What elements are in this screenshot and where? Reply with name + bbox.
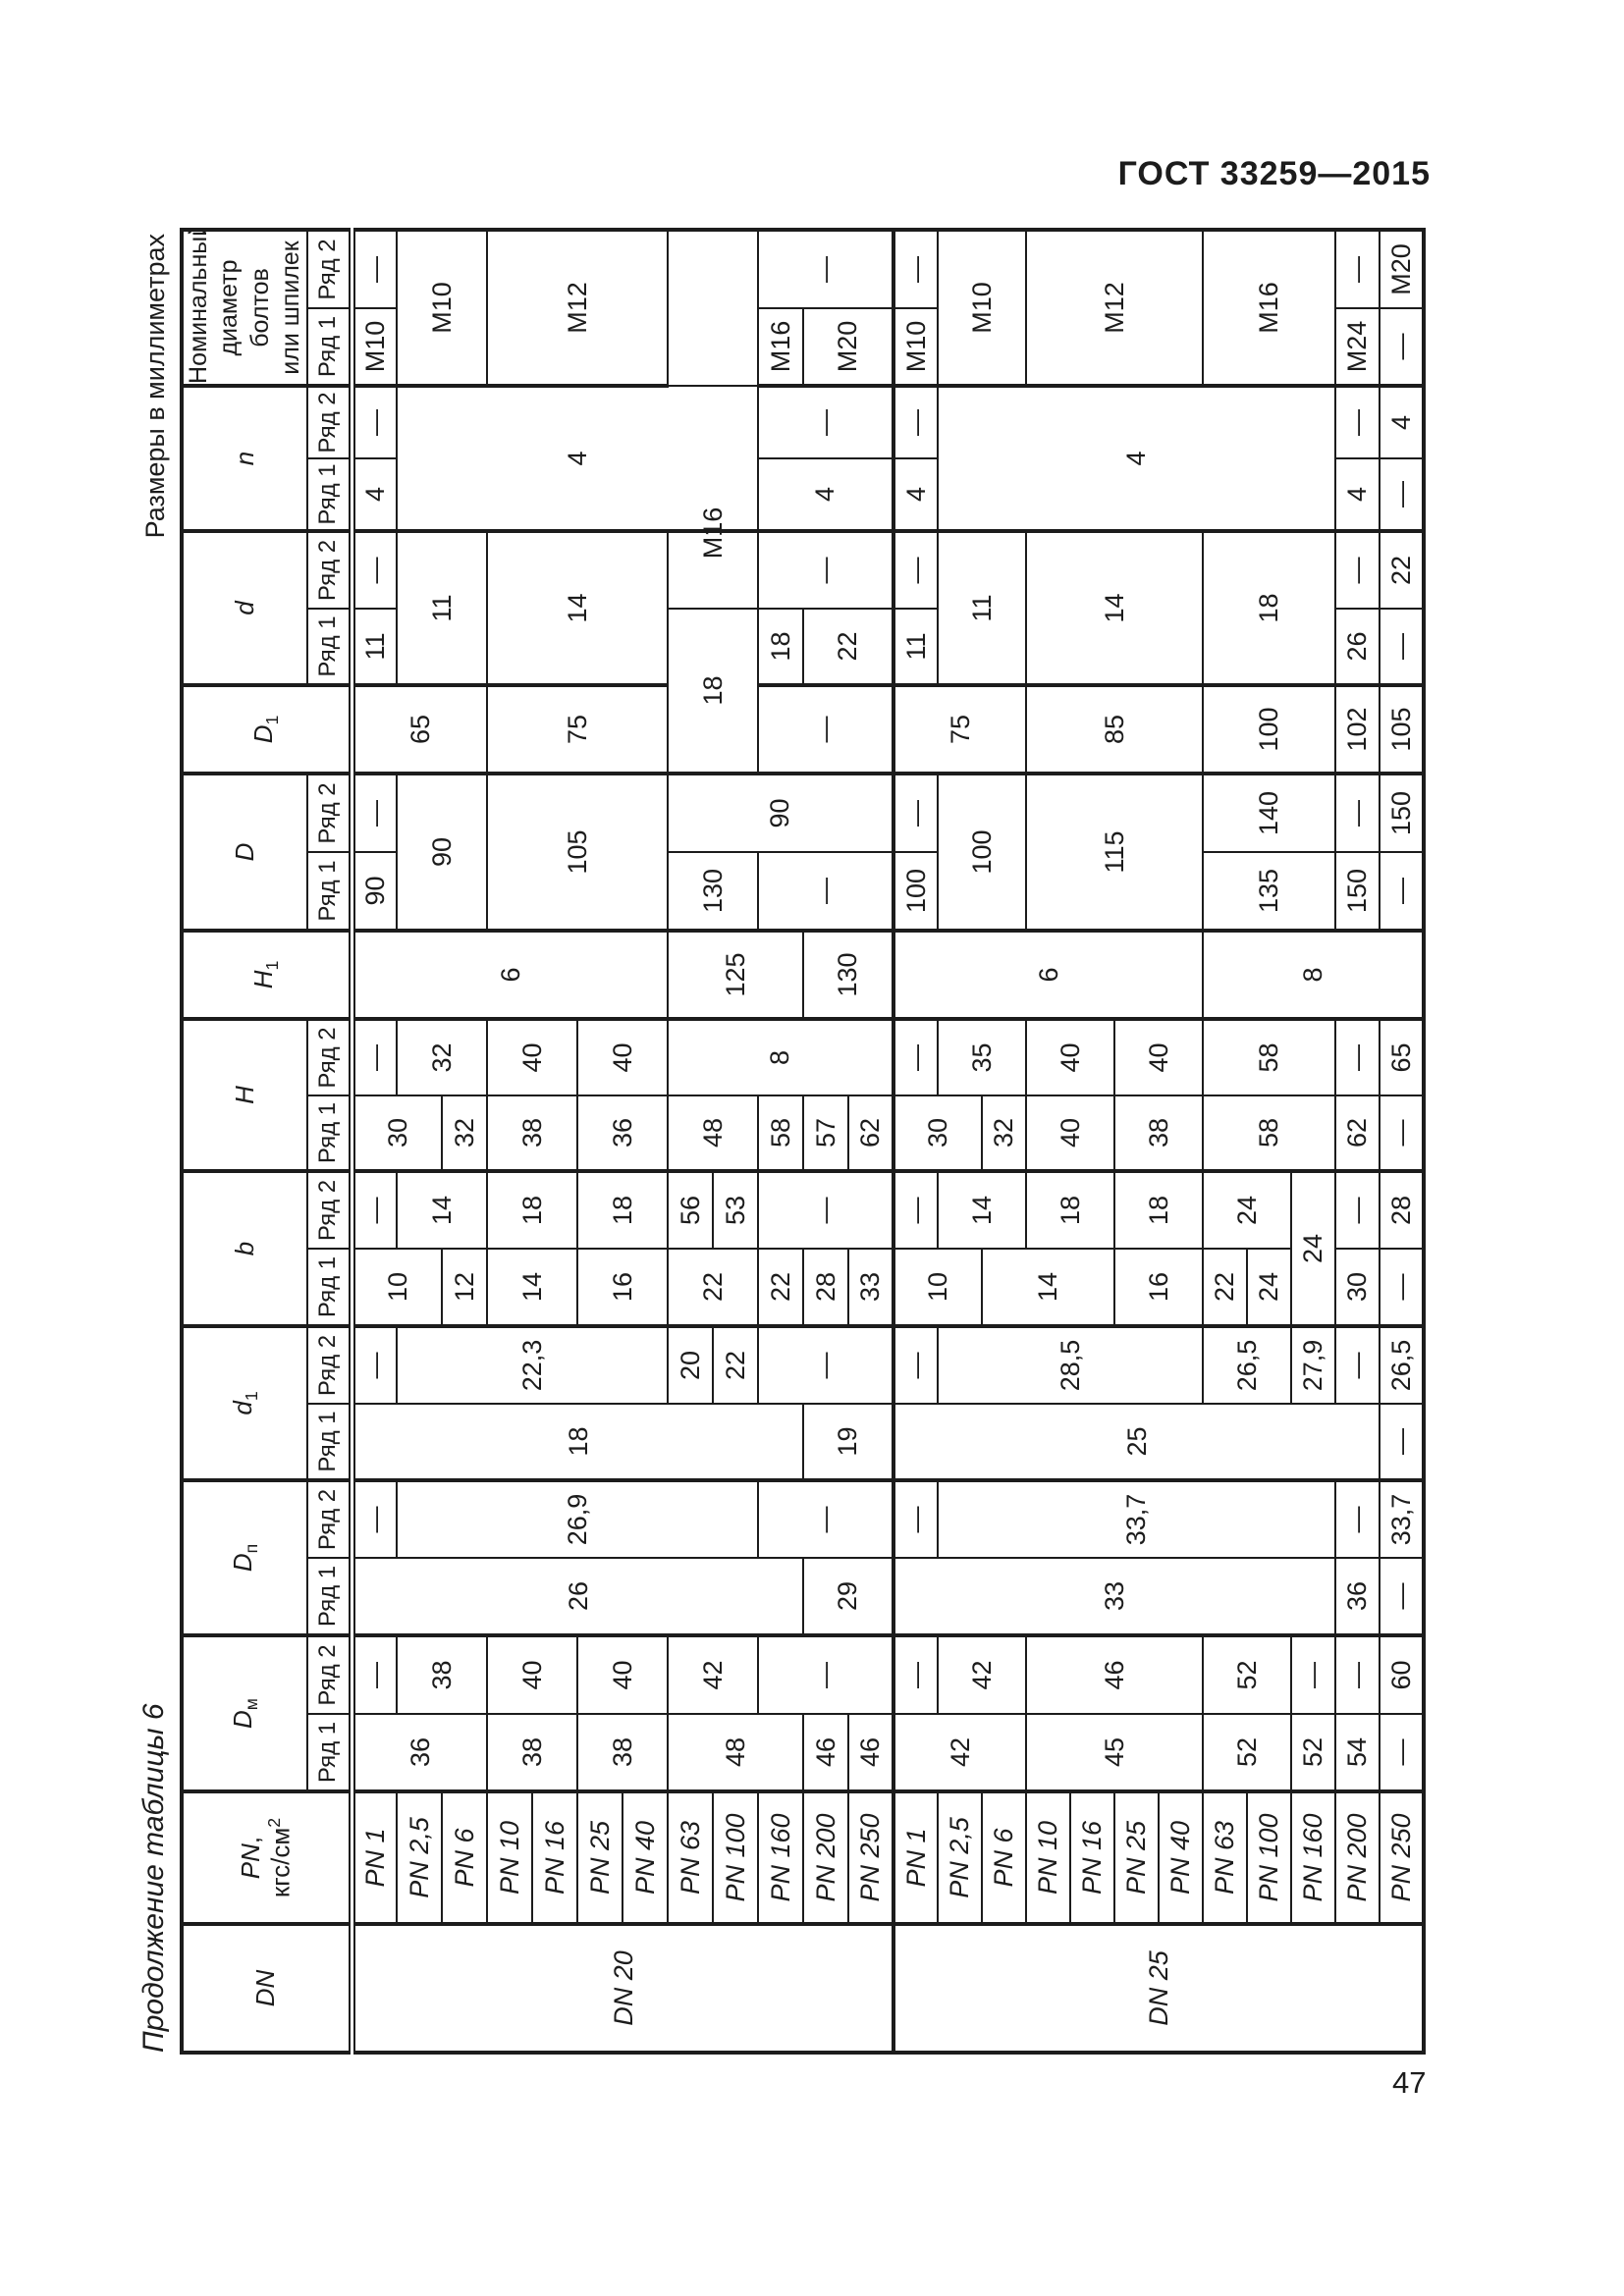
row-header-pn: PN 1: [893, 1791, 938, 1924]
row-header-pn: PN 40: [1159, 1791, 1203, 1924]
table-cell: 46: [803, 1714, 848, 1791]
table-cell: —: [1335, 230, 1380, 308]
column-header: D1: [182, 685, 352, 774]
table-cell: 53: [713, 1171, 758, 1249]
table-cell: —: [352, 531, 397, 609]
table-cell: 12: [442, 1249, 487, 1326]
row-header-pn: PN 100: [1247, 1791, 1291, 1924]
table-cell: 150: [1380, 774, 1424, 852]
table-cell: —: [352, 386, 397, 458]
page-number: 47: [1392, 2065, 1426, 2101]
row-header-pn: PN 25: [1114, 1791, 1159, 1924]
table-cell: 4: [1335, 458, 1380, 531]
table-cell: 40: [487, 1635, 577, 1714]
table-cell: М10: [893, 308, 938, 386]
table-cell: —: [1335, 1326, 1380, 1404]
table-cell: 22: [713, 1326, 758, 1404]
table-cell: 38: [397, 1635, 487, 1714]
table-cell: 14: [487, 1249, 577, 1326]
table-cell: —: [1380, 1714, 1424, 1791]
table-cell: —: [1335, 1171, 1380, 1249]
table-cell: М16: [1203, 230, 1335, 386]
table-cell: 52: [1203, 1635, 1291, 1714]
table-cell: М24: [1335, 308, 1380, 386]
table-cell: 33: [848, 1249, 893, 1326]
table-cell: 11: [397, 531, 487, 685]
table-cell: 24: [1247, 1249, 1291, 1326]
table-cell: —: [1335, 774, 1380, 852]
table-cell: —: [893, 230, 938, 308]
table-continuation-caption: Продолжение таблицы 6: [137, 1703, 171, 2053]
table-cell: —: [1335, 1635, 1380, 1714]
table-cell: —: [1380, 458, 1424, 531]
table-cell: 36: [352, 1714, 487, 1791]
document-header: ГОСТ 33259—2015: [1118, 155, 1431, 193]
table-cell: 75: [487, 685, 668, 774]
units-caption: Размеры в миллиметрах: [140, 234, 171, 538]
column-header: Dм: [182, 1635, 307, 1791]
row-header-pn: PN 1: [352, 1791, 397, 1924]
row-header-pn: PN 2,5: [397, 1791, 442, 1924]
table-cell: 52: [1203, 1714, 1291, 1791]
table-cell: 11: [893, 609, 938, 685]
table-cell: —: [893, 1019, 938, 1095]
table-cell: М16: [758, 308, 803, 386]
table-cell: 4: [758, 458, 893, 531]
row-header-pn: PN 200: [803, 1791, 848, 1924]
row-header-pn: PN 250: [1380, 1791, 1424, 1924]
table-cell: М10: [397, 230, 487, 386]
row-header-pn: PN 6: [442, 1791, 487, 1924]
table-cell: 26,5: [1380, 1326, 1424, 1404]
row-header-pn: PN 16: [1070, 1791, 1114, 1924]
table-cell: М20: [1380, 230, 1424, 308]
table-cell: 10: [893, 1249, 982, 1326]
table-cell: 28,5: [938, 1326, 1203, 1404]
table-cell: 135: [1203, 852, 1335, 931]
table-cell: 150: [1335, 852, 1380, 931]
table-cell: 8: [1203, 931, 1424, 1019]
table-cell: 38: [487, 1714, 577, 1791]
table-cell: 18: [487, 1171, 577, 1249]
table-cell: 4: [352, 458, 397, 531]
table-cell: 36: [1335, 1558, 1380, 1635]
table-cell: 19: [803, 1404, 893, 1480]
table-cell: —: [1335, 386, 1380, 458]
table-cell: 58: [1203, 1095, 1335, 1171]
table-cell: М16: [668, 458, 758, 609]
document-page: { "page": { "header": "ГОСТ 33259—2015",…: [0, 0, 1624, 2296]
table-cell: 40: [1026, 1019, 1114, 1095]
row-header-pn: PN 2,5: [938, 1791, 982, 1924]
table-cell: —: [1335, 1019, 1380, 1095]
table-cell: 4: [1380, 386, 1424, 458]
table-cell: 35: [938, 1019, 1026, 1095]
table-cell: 16: [577, 1249, 668, 1326]
table-cell: 105: [1380, 685, 1424, 774]
flange-dimensions-table: DNPN,кгс/см2DмDпd1bHH1DD1dnНоминальныйди…: [180, 228, 1426, 2055]
table-cell: 40: [1026, 1095, 1114, 1171]
column-header: Dп: [182, 1480, 307, 1635]
table-cell: —: [352, 1019, 397, 1095]
table-cell: 62: [848, 1095, 893, 1171]
rotated-table-block: Продолжение таблицы 6 Размеры в миллимет…: [128, 232, 1432, 2055]
table-cell: —: [758, 1171, 893, 1249]
table-cell: 28: [803, 1249, 848, 1326]
table-cell: 14: [938, 1171, 1026, 1249]
table-cell: 22: [758, 1249, 803, 1326]
table-cell: —: [893, 1326, 938, 1404]
row-header-pn: PN 63: [1203, 1791, 1247, 1924]
table-cell: 4: [938, 386, 1335, 531]
table-cell: 65: [352, 685, 487, 774]
table-cell: 130: [668, 852, 758, 931]
table-cell: М12: [1026, 230, 1203, 386]
column-header: b: [182, 1171, 307, 1326]
table-cell: 40: [1114, 1019, 1203, 1095]
table-cell: 115: [1026, 774, 1203, 931]
table-cell: 90: [397, 774, 487, 931]
column-header: H1: [182, 931, 352, 1019]
table-cell: 24: [1203, 1171, 1291, 1249]
table-cell: 22: [803, 609, 893, 685]
table-cell: —: [1380, 1404, 1424, 1480]
row-series-header: Ряд 1: [307, 1249, 352, 1326]
table-cell: —: [1380, 852, 1424, 931]
row-header-pn: PN 250: [848, 1791, 893, 1924]
table-cell: —: [1291, 1635, 1335, 1714]
column-header: d1: [182, 1326, 307, 1480]
table-cell: 14: [1026, 531, 1203, 685]
table-cell: 18: [352, 1404, 803, 1480]
table-cell: 32: [442, 1095, 487, 1171]
table-cell: 4: [893, 458, 938, 531]
table-cell: 18: [577, 1171, 668, 1249]
table-cell: 75: [893, 685, 1026, 774]
table-cell: 18: [1026, 1171, 1114, 1249]
table-cell: 85: [1026, 685, 1203, 774]
table-cell: 38: [1114, 1095, 1203, 1171]
row-header-pn: PN 40: [623, 1791, 668, 1924]
table-cell: 38: [487, 1095, 577, 1171]
table-cell: 30: [893, 1095, 982, 1171]
table-cell: 8: [668, 1019, 893, 1095]
table-cell: 38: [577, 1714, 668, 1791]
table-cell: 40: [577, 1635, 668, 1714]
table-cell: 22,3: [397, 1326, 668, 1404]
row-series-header: Ряд 2: [307, 1019, 352, 1095]
row-group-dn: DN 25: [893, 1924, 1424, 2053]
table-cell: —: [893, 531, 938, 609]
table-cell: —: [352, 1171, 397, 1249]
table-cell: 42: [938, 1635, 1026, 1714]
table-cell: 52: [1291, 1714, 1335, 1791]
table-cell: 24: [1291, 1171, 1335, 1326]
table-cell: —: [1380, 609, 1424, 685]
table-cell: 100: [893, 852, 938, 931]
table-cell: —: [893, 1635, 938, 1714]
table-cell: 22: [1203, 1249, 1247, 1326]
table-cell: —: [1380, 1249, 1424, 1326]
row-series-header: Ряд 1: [307, 458, 352, 531]
column-header: DN: [182, 1924, 352, 2053]
row-series-header: Ряд 2: [307, 774, 352, 852]
row-series-header: Ряд 1: [307, 852, 352, 931]
table-cell: 57: [803, 1095, 848, 1171]
table-cell: 42: [893, 1714, 1026, 1791]
table-cell: 16: [1114, 1249, 1203, 1326]
table-cell: 20: [668, 1326, 713, 1404]
table-cell: —: [352, 1635, 397, 1714]
table-cell: 14: [487, 531, 668, 685]
table-cell: 90: [668, 774, 893, 852]
row-header-pn: PN 6: [982, 1791, 1026, 1924]
table-cell: 54: [1335, 1714, 1380, 1791]
table-cell: —: [758, 230, 893, 308]
table-cell: 46: [1026, 1635, 1203, 1714]
table-cell: —: [352, 1326, 397, 1404]
table-cell: 10: [352, 1249, 442, 1326]
table-cell: —: [893, 774, 938, 852]
row-series-header: Ряд 2: [307, 386, 352, 458]
row-header-pn: PN 10: [1026, 1791, 1070, 1924]
row-series-header: Ряд 1: [307, 1558, 352, 1635]
table-cell: 48: [668, 1714, 803, 1791]
table-cell: 14: [397, 1171, 487, 1249]
table-cell: 14: [982, 1249, 1114, 1326]
table-cell: 18: [758, 609, 803, 685]
table-cell: 28: [1380, 1171, 1424, 1249]
table-cell: 58: [758, 1095, 803, 1171]
row-header-pn: PN 63: [668, 1791, 713, 1924]
table-cell: 32: [982, 1095, 1026, 1171]
row-series-header: Ряд 1: [307, 308, 352, 386]
column-header: d: [182, 531, 307, 685]
row-header-pn: PN 160: [1291, 1791, 1335, 1924]
table-cell: —: [1335, 1480, 1380, 1558]
table-cell: 22: [1380, 531, 1424, 609]
table-cell: 30: [1335, 1249, 1380, 1326]
table-cell: —: [758, 1635, 893, 1714]
row-group-dn: DN 20: [352, 1924, 893, 2053]
table-cell: 29: [803, 1558, 893, 1635]
table-cell: 90: [352, 852, 397, 931]
table-cell: 26,5: [1203, 1326, 1291, 1404]
row-series-header: Ряд 2: [307, 1635, 352, 1714]
table-cell: —: [758, 685, 893, 774]
table-cell: 45: [1026, 1714, 1203, 1791]
table-cell: 100: [1203, 685, 1335, 774]
table-cell: М10: [352, 308, 397, 386]
row-header-pn: PN 200: [1335, 1791, 1380, 1924]
table-cell: М10: [938, 230, 1026, 386]
table-cell: 25: [893, 1404, 1380, 1480]
row-series-header: Ряд 1: [307, 1714, 352, 1791]
table-cell: 58: [1203, 1019, 1335, 1095]
table-cell: 48: [668, 1095, 758, 1171]
table-cell: —: [758, 1480, 893, 1558]
row-series-header: Ряд 2: [307, 1480, 352, 1558]
table-cell: 18: [1114, 1171, 1203, 1249]
table-cell: 33,7: [1380, 1480, 1424, 1558]
row-series-header: Ряд 2: [307, 230, 352, 308]
table-cell: М20: [803, 308, 893, 386]
table-cell: 40: [487, 1019, 577, 1095]
table-cell: 30: [352, 1095, 442, 1171]
table-cell: 140: [1203, 774, 1335, 852]
table-cell: 32: [397, 1019, 487, 1095]
table-cell: 46: [848, 1714, 893, 1791]
table-cell: —: [893, 1480, 938, 1558]
table-cell: 60: [1380, 1635, 1424, 1714]
row-header-pn: PN 25: [577, 1791, 623, 1924]
column-header: D: [182, 774, 307, 931]
row-series-header: Ряд 1: [307, 1095, 352, 1171]
table-cell: 6: [893, 931, 1203, 1019]
table-cell: 6: [352, 931, 668, 1019]
table-cell: —: [758, 531, 893, 609]
table-cell: 18: [1203, 531, 1335, 685]
column-header: H: [182, 1019, 307, 1171]
table-cell: —: [893, 1171, 938, 1249]
table-cell: 11: [352, 609, 397, 685]
table-cell: 36: [577, 1095, 668, 1171]
table-cell: —: [352, 774, 397, 852]
table-cell: 102: [1335, 685, 1380, 774]
table-cell: —: [758, 386, 893, 458]
table-cell: 125: [668, 931, 803, 1019]
table-cell: 26: [1335, 609, 1380, 685]
table-cell: 56: [668, 1171, 713, 1249]
table-cell: 22: [668, 1249, 758, 1326]
table-cell: —: [893, 386, 938, 458]
row-series-header: Ряд 2: [307, 1326, 352, 1404]
table-cell: —: [352, 230, 397, 308]
table-cell: 18: [668, 609, 758, 774]
table-cell: —: [352, 1480, 397, 1558]
row-series-header: Ряд 2: [307, 1171, 352, 1249]
table-cell: 33,7: [938, 1480, 1335, 1558]
table-cell: М12: [487, 230, 668, 386]
table-cell: 26,9: [397, 1480, 758, 1558]
row-series-header: Ряд 1: [307, 609, 352, 685]
row-series-header: Ряд 2: [307, 531, 352, 609]
row-header-pn: PN 10: [487, 1791, 532, 1924]
table-cell: —: [758, 1326, 893, 1404]
table-cell: 130: [803, 931, 893, 1019]
row-header-pn: PN 160: [758, 1791, 803, 1924]
table-cell: —: [1380, 308, 1424, 386]
table-cell: 62: [1335, 1095, 1380, 1171]
row-series-header: Ряд 1: [307, 1404, 352, 1480]
table-cell: —: [1380, 1558, 1424, 1635]
table-cell: —: [1335, 531, 1380, 609]
table-cell: —: [1380, 1095, 1424, 1171]
row-header-pn: PN 100: [713, 1791, 758, 1924]
table-cell: 100: [938, 774, 1026, 931]
column-header: n: [182, 386, 307, 531]
column-header: PN,кгс/см2: [182, 1791, 352, 1924]
table-cell: 27,9: [1291, 1326, 1335, 1404]
column-header: Номинальныйдиаметрболтовили шпилек: [182, 230, 307, 386]
table-cell: 33: [893, 1558, 1335, 1635]
table-cell: 65: [1380, 1019, 1424, 1095]
table-cell: 26: [352, 1558, 803, 1635]
table-cell: 105: [487, 774, 668, 931]
table-cell: 11: [938, 531, 1026, 685]
table-caption-row: Продолжение таблицы 6 Размеры в миллимет…: [128, 232, 180, 2055]
row-header-pn: PN 16: [532, 1791, 577, 1924]
table-cell: 42: [668, 1635, 758, 1714]
table-cell: 40: [577, 1019, 668, 1095]
table-cell: —: [758, 852, 893, 931]
